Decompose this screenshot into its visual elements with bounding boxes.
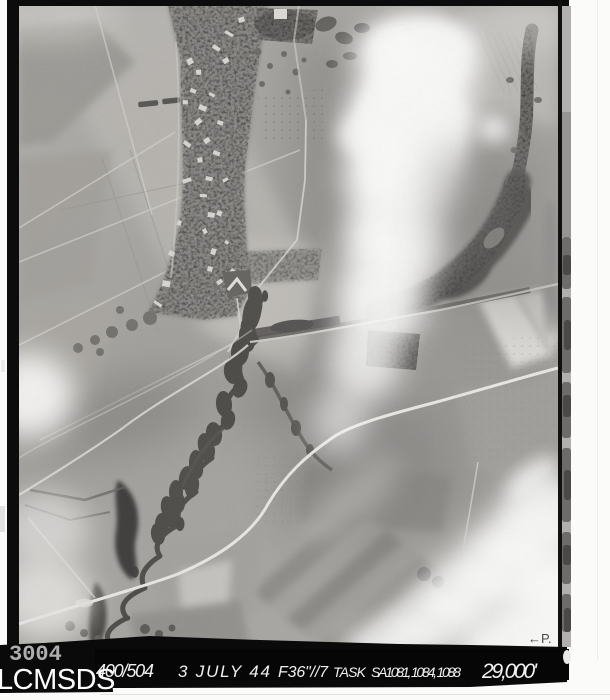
svg-text:29,000': 29,000': [481, 660, 538, 683]
svg-text:SA1081, 1084, 1088: SA1081, 1084, 1088: [371, 664, 461, 680]
svg-text:LCMSDS: LCMSDS: [0, 664, 115, 696]
svg-text:F36"//7: F36"//7: [278, 664, 329, 681]
svg-text:←P.: ←P.: [528, 631, 552, 646]
svg-text:3 JULY 44: 3 JULY 44: [178, 662, 270, 681]
svg-text:TASK: TASK: [333, 664, 367, 680]
